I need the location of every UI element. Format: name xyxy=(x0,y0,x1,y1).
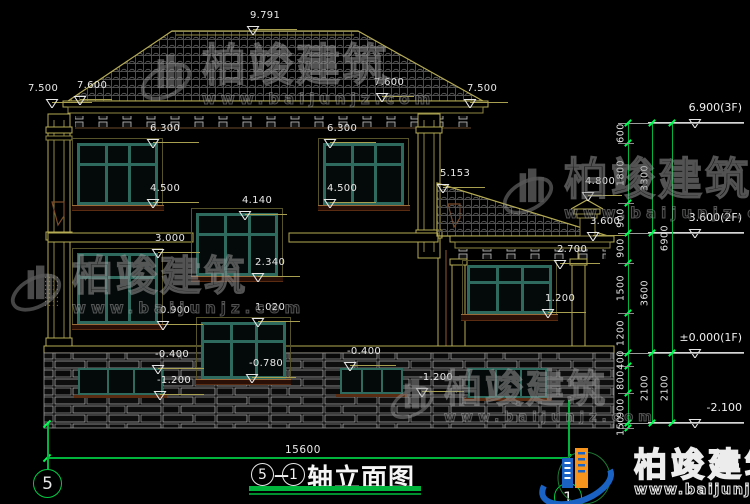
elevation-marker-value: 2.700 xyxy=(557,244,587,255)
cad-elevation-drawing: 9.7917.5007.6007.6007.5006.3006.3004.500… xyxy=(0,0,750,504)
floor-level-value: -2.100 xyxy=(707,401,742,414)
main-dentil-row xyxy=(75,116,471,127)
elevation-marker-triangle xyxy=(251,267,265,286)
elevation-marker-triangle xyxy=(323,133,337,152)
belt-course-right xyxy=(289,233,438,242)
building-linework xyxy=(0,0,750,504)
dim-extension-minor xyxy=(618,143,634,144)
elevation-marker-value: 6.300 xyxy=(327,123,357,134)
elevation-marker-value: -1.200 xyxy=(419,372,453,383)
floor-level-value: 3.600(2F) xyxy=(689,211,742,224)
level-extension-line xyxy=(618,123,744,124)
basement-window-right xyxy=(468,368,547,398)
level-extension-line xyxy=(618,233,744,234)
elevation-marker-triangle xyxy=(541,303,555,322)
dim-chain-value: 150 xyxy=(616,416,627,436)
dim-chain-value: 1500 xyxy=(616,275,627,301)
elevation-marker-triangle xyxy=(586,226,600,245)
floor-level-value: ±0.000(1F) xyxy=(679,331,742,344)
elevation-marker-triangle xyxy=(245,368,259,387)
elevation-marker-triangle xyxy=(238,205,252,224)
elevation-marker-value: 1.020 xyxy=(255,302,285,313)
dim-chain-value: 3300 xyxy=(640,165,651,191)
level-extension-line xyxy=(618,423,744,424)
elevation-marker-triangle xyxy=(343,356,357,375)
elevation-marker-value: 0.900 xyxy=(160,305,190,316)
elevation-marker-value: -0.400 xyxy=(347,346,381,357)
elevation-marker-triangle xyxy=(436,178,450,197)
dim-chain-value: 800 xyxy=(616,370,627,390)
axis-bubble-5: 5 xyxy=(33,469,62,498)
title-axis-end-bubble: 1 xyxy=(282,463,305,486)
elevation-marker-triangle xyxy=(463,93,477,112)
elevation-marker-value: 4.500 xyxy=(150,183,180,194)
elevation-marker-triangle xyxy=(151,243,165,262)
dim-extension-minor xyxy=(618,313,634,314)
elevation-marker-value: -0.780 xyxy=(249,358,283,369)
elevation-marker-triangle xyxy=(246,20,260,39)
brand-name: 柏竣建筑 xyxy=(634,448,750,481)
basement-sill xyxy=(464,398,551,401)
dim-chain-value: 1800 xyxy=(616,160,627,186)
elevation-marker-value: 6.300 xyxy=(150,123,180,134)
axis-line-left xyxy=(47,424,49,470)
dim-chain-line xyxy=(628,123,629,428)
floor-level-value: 6.900(3F) xyxy=(689,101,742,114)
elevation-marker-triangle xyxy=(581,186,595,205)
elevation-marker-triangle xyxy=(45,93,59,112)
elevation-marker-value: -0.400 xyxy=(155,349,189,360)
base-trim xyxy=(44,346,614,353)
dim-chain-value: 900 xyxy=(616,208,627,228)
dim-chain-value: 6900 xyxy=(660,225,671,251)
dim-chain-value: 2100 xyxy=(640,375,651,401)
brand-logo: 柏竣建筑 www.baijunjz.com xyxy=(528,442,750,504)
elevation-marker-triangle xyxy=(73,90,87,109)
window-center-low xyxy=(201,322,286,379)
dim-chain-value: 600 xyxy=(616,123,627,143)
elevation-marker-value: 5.153 xyxy=(440,168,470,179)
elevation-marker-triangle xyxy=(415,382,429,401)
dim-chain-line xyxy=(672,123,673,423)
window-sill xyxy=(72,324,164,330)
left-pilaster xyxy=(45,114,72,347)
elevation-marker-value: 7.600 xyxy=(374,77,404,88)
elevation-marker-triangle xyxy=(146,133,160,152)
elevation-marker-value: 7.500 xyxy=(28,83,58,94)
dim-chain-value: 2100 xyxy=(660,375,671,401)
elevation-marker-triangle xyxy=(553,254,567,273)
elevation-marker-value: 3.000 xyxy=(155,233,185,244)
main-roof xyxy=(68,31,483,101)
elevation-marker-value: 4.500 xyxy=(327,183,357,194)
dim-chain-value: 1200 xyxy=(616,320,627,346)
brand-logo-icon xyxy=(528,442,628,504)
elevation-marker-value: -1.200 xyxy=(157,375,191,386)
dim-extension-minor xyxy=(618,393,634,394)
main-eave-fascia xyxy=(63,101,488,107)
level-extension-line xyxy=(618,353,744,354)
elevation-marker-value: 1.200 xyxy=(545,293,575,304)
elevation-marker-triangle xyxy=(153,385,167,404)
dim-chain-value: 900 xyxy=(616,398,627,418)
title-axis-start-bubble: 5 xyxy=(251,463,274,486)
elevation-marker-value: 7.600 xyxy=(77,80,107,91)
elevation-marker-value: 2.340 xyxy=(255,257,285,268)
basement-sill xyxy=(336,394,407,397)
dim-chain-line xyxy=(652,123,653,423)
elevation-marker-value: 9.791 xyxy=(250,10,280,21)
dim-extension-minor xyxy=(618,263,634,264)
dim-chain-value: 900 xyxy=(616,238,627,258)
brand-url: www.baijunjz.com xyxy=(634,482,750,498)
elevation-marker-triangle xyxy=(251,312,265,331)
window-sill xyxy=(196,379,291,385)
title-underline-thin xyxy=(249,493,421,495)
elevation-marker-value: 4.800 xyxy=(585,176,615,187)
window-1f-left xyxy=(77,253,158,324)
elevation-marker-triangle xyxy=(375,87,389,106)
elevation-marker-value: 4.140 xyxy=(242,195,272,206)
elevation-marker-triangle xyxy=(156,315,170,334)
dim-chain-value: 400 xyxy=(616,350,627,370)
elevation-marker-triangle xyxy=(323,193,337,212)
elevation-marker-value: 7.500 xyxy=(467,83,497,94)
dim-extension-minor xyxy=(618,203,634,204)
title-underline-thick xyxy=(249,486,421,491)
elevation-marker-triangle xyxy=(146,193,160,212)
overall-dim-text: 15600 xyxy=(285,444,321,456)
window-annex xyxy=(467,265,552,314)
dim-chain-value: 3600 xyxy=(640,280,651,306)
